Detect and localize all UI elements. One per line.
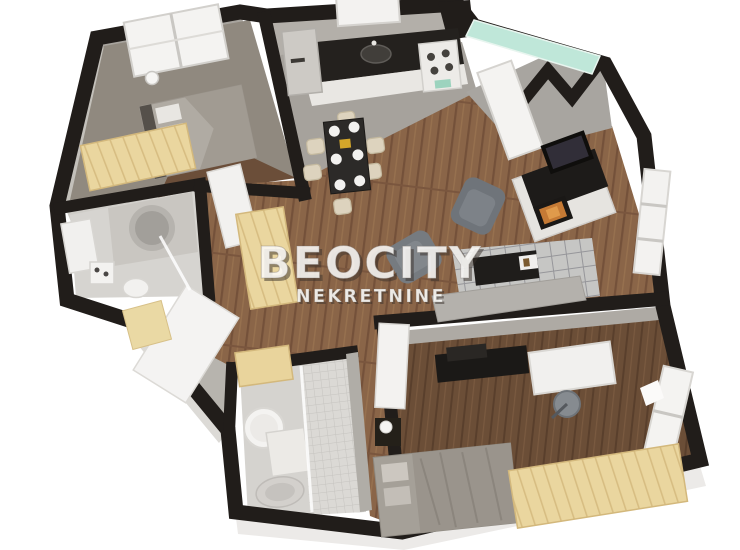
hall-dresser xyxy=(235,345,293,386)
toilet-1 xyxy=(123,279,149,298)
ceiling-lamp xyxy=(146,72,159,85)
fridge xyxy=(282,28,323,95)
bathtub-basin xyxy=(135,211,169,245)
double-bed-2 xyxy=(373,443,519,537)
faucet xyxy=(372,41,377,46)
dining-chair xyxy=(306,138,325,155)
floor-plan-svg: BEOCITY BEOCITY NEKRETNINE NEKRETNINE xyxy=(0,0,740,550)
kitchen-window xyxy=(336,0,400,26)
watermark-subtitle: NEKRETNINE xyxy=(296,287,446,307)
dining-chair xyxy=(366,137,385,154)
table-centerpiece xyxy=(339,139,351,149)
stove xyxy=(419,40,462,92)
bedside-lamp xyxy=(380,421,392,433)
dining-table xyxy=(323,118,370,194)
kitchen-sink xyxy=(361,45,391,63)
dining-chair xyxy=(303,164,322,181)
watermark-title: BEOCITY xyxy=(257,238,483,289)
bedroom2-door-open xyxy=(375,323,409,408)
dining-chair xyxy=(333,198,352,215)
shower-base xyxy=(266,428,310,477)
floor-plan-image: BEOCITY BEOCITY NEKRETNINE NEKRETNINE xyxy=(0,0,740,550)
bed2-pillow xyxy=(381,462,409,483)
washing-machine-1 xyxy=(90,262,114,284)
bed2-pillow-2 xyxy=(384,486,412,507)
bathroom2-left-wall xyxy=(229,368,232,432)
oven-window xyxy=(435,79,452,89)
